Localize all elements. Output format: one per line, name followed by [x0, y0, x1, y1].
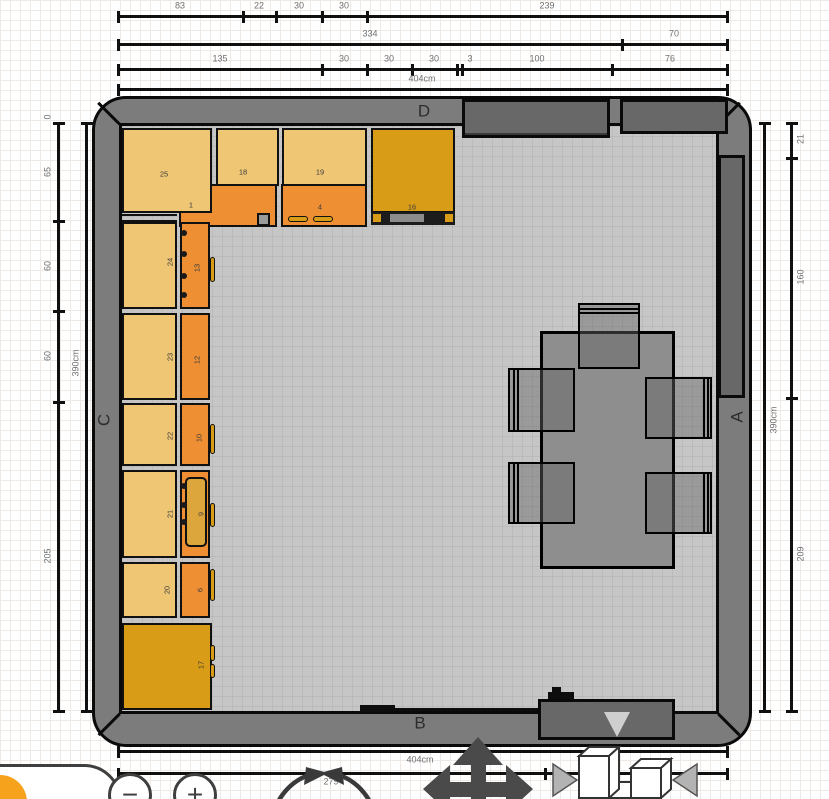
wall-label-b: B [414, 715, 425, 732]
dimension-value: 0 [44, 114, 53, 119]
baseboard [395, 708, 538, 711]
dimension-tick [53, 710, 65, 713]
dimension-value: 30 [429, 55, 439, 64]
dimension-tick [117, 39, 120, 51]
dimension-tick [461, 64, 464, 76]
dimension-tick [117, 746, 120, 758]
dimension-tick [726, 768, 729, 780]
dimension-tick [321, 64, 324, 76]
rotate-left-icon [272, 767, 328, 799]
window-handle [548, 692, 574, 699]
dimension-tick [786, 397, 798, 400]
dimension-value: 209 [797, 546, 806, 561]
dimension-value: 30 [339, 55, 349, 64]
knob-dot [181, 292, 187, 298]
dimension-tick [117, 64, 120, 76]
chair-back-line [517, 464, 519, 522]
chair-back-line [707, 379, 709, 437]
dimension-line [118, 68, 727, 71]
dimension-tick [786, 122, 798, 125]
menu-accent-dot [0, 775, 27, 799]
cubes-3d-icon [579, 747, 671, 798]
dimension-value: 60 [44, 351, 53, 361]
window-handle [552, 687, 561, 693]
door-handle [288, 216, 308, 222]
chair-back-line [703, 379, 705, 437]
counter-edge [122, 220, 177, 222]
dimension-line [57, 123, 60, 711]
knob-dot [181, 483, 187, 489]
dimension-value: 135 [212, 55, 227, 64]
cabinet-16[interactable] [371, 128, 455, 213]
cabinet-number: 4 [318, 203, 322, 211]
dimension-tick [53, 220, 65, 223]
dimension-value: 70 [669, 30, 679, 39]
move-arrows-icon [423, 737, 533, 799]
chair-back-line [513, 464, 515, 522]
minus-icon: − [122, 781, 138, 799]
window-right[interactable] [718, 155, 745, 398]
cabinet-number: 18 [239, 168, 247, 176]
knob-dot [181, 519, 187, 525]
corner-filler-block [257, 213, 270, 226]
cabinet-number: 13 [193, 264, 201, 272]
dimension-tick [275, 11, 278, 23]
dimension-value: 21 [797, 134, 806, 144]
window-open-arrow-icon [604, 712, 630, 737]
chair-back-line [580, 312, 638, 314]
dimension-tick [53, 310, 65, 313]
chair-back-line [513, 370, 515, 430]
baseboard [360, 705, 395, 712]
dimension-tick [53, 122, 65, 125]
chair-back-line [703, 474, 705, 532]
chair-back-line [707, 474, 709, 532]
dimension-value: 76 [665, 55, 675, 64]
door-handle [210, 424, 215, 454]
dimension-tick [726, 64, 729, 76]
floorplan-canvas: 141312109625181924232221201617DBCA832230… [0, 0, 829, 799]
cabinet-19[interactable] [282, 128, 367, 186]
dimension-tick [53, 401, 65, 404]
cabinet-number: 24 [166, 258, 174, 266]
counter-edge [122, 214, 177, 216]
cabinet-number: 9 [197, 512, 205, 516]
plus-icon: + [187, 781, 203, 799]
view-3d-control[interactable] [545, 746, 705, 799]
knob-dot [181, 273, 187, 279]
dimension-value: 22 [254, 2, 264, 11]
cabinet-number: 12 [193, 356, 201, 364]
next-view-icon [673, 764, 697, 796]
chair-back-line [580, 308, 638, 310]
dimension-tick [621, 39, 624, 51]
cabinet-number: 20 [163, 586, 171, 594]
dimension-tick [117, 11, 120, 23]
dimension-tick [786, 157, 798, 160]
dimension-value: 404cm [408, 75, 435, 84]
dimension-value: 65 [44, 167, 53, 177]
dimension-value: 3 [467, 55, 472, 64]
dimension-tick [366, 11, 369, 23]
dimension-value: 205 [44, 548, 53, 563]
dimension-value: 83 [175, 2, 185, 11]
dimension-tick [786, 710, 798, 713]
chair[interactable] [645, 377, 712, 439]
door-handle [210, 257, 215, 282]
rotate-control[interactable] [260, 765, 388, 799]
cabinet-number: 25 [160, 170, 168, 178]
dimension-value: 390cm [770, 406, 779, 433]
cooktop-part [390, 214, 424, 222]
move-control[interactable] [420, 735, 536, 799]
dimension-tick [456, 64, 459, 76]
cooktop-part [373, 214, 381, 222]
dimension-value: 334 [362, 30, 377, 39]
dimension-line [763, 123, 766, 711]
cabinet-number: 19 [316, 168, 324, 176]
cabinet-number: 6 [196, 588, 204, 592]
plan-layer: 141312109625181924232221201617DBCA832230… [0, 0, 829, 799]
dimension-tick [759, 710, 771, 713]
wall-label-a: A [729, 411, 746, 422]
dimension-tick [242, 11, 245, 23]
dimension-tick [726, 84, 729, 96]
dimension-tick [759, 122, 771, 125]
prev-view-icon [553, 764, 577, 796]
menu-button[interactable] [0, 764, 122, 799]
dimension-value: 160 [797, 269, 806, 284]
dimension-line [790, 123, 793, 711]
dimension-tick [81, 122, 93, 125]
dimension-line [118, 15, 727, 18]
knob-dot [181, 502, 187, 508]
dimension-line [85, 123, 88, 711]
cabinet-number: 10 [195, 434, 203, 442]
dimension-tick [366, 64, 369, 76]
dimension-tick [726, 11, 729, 23]
cabinet-number: 16 [408, 203, 416, 211]
dimension-value: 239 [539, 2, 554, 11]
dimension-tick [321, 11, 324, 23]
dimension-tick [117, 84, 120, 96]
dimension-value: 100 [529, 55, 544, 64]
dimension-value: 60 [44, 261, 53, 271]
wall-label-c: C [96, 414, 113, 426]
dimension-value: 30 [384, 55, 394, 64]
door-handle [210, 503, 215, 527]
cabinet-number: 22 [166, 432, 174, 440]
cabinet-number: 21 [166, 510, 174, 518]
dimension-tick [611, 64, 614, 76]
dimension-line [118, 88, 727, 91]
cooktop-part [445, 214, 453, 222]
chair-back-line [517, 370, 519, 430]
door-handle [210, 645, 215, 661]
knob-dot [181, 251, 187, 257]
cabinet-number: 23 [166, 353, 174, 361]
dimension-value: 30 [339, 2, 349, 11]
dimension-line [118, 43, 727, 46]
rotate-right-icon [320, 767, 376, 799]
cabinet-18[interactable] [216, 128, 279, 186]
wall-label-d: D [418, 103, 430, 120]
dimension-value: 30 [294, 2, 304, 11]
window-top-left[interactable] [462, 99, 610, 138]
knob-dot [181, 230, 187, 236]
cabinet-number: 17 [197, 661, 205, 669]
dimension-value: 390cm [72, 349, 81, 376]
dimension-tick [81, 710, 93, 713]
door-handle [313, 216, 333, 222]
dimension-tick [726, 39, 729, 51]
door-handle [210, 569, 215, 601]
door-handle [210, 664, 215, 678]
chair[interactable] [645, 472, 712, 534]
cabinet-number: 1 [189, 201, 193, 209]
dimension-tick [726, 746, 729, 758]
window-top-right[interactable] [620, 99, 728, 134]
